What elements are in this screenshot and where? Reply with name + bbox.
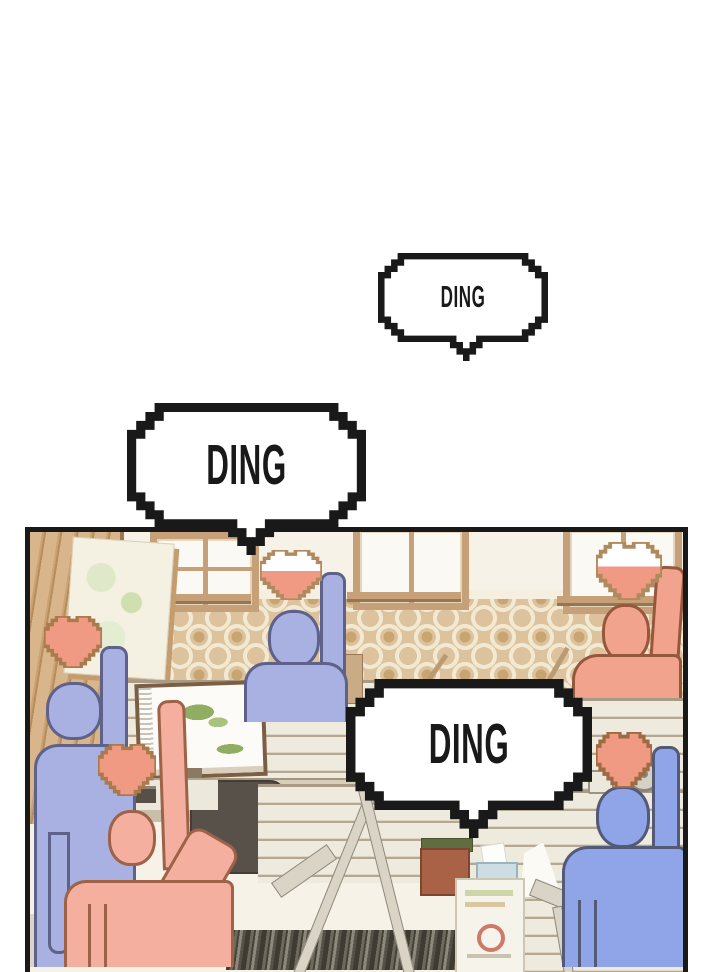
poster-line-2 bbox=[465, 902, 505, 907]
head bbox=[268, 610, 320, 668]
poster-line-3 bbox=[467, 954, 511, 958]
pixel-heart-icon-filled bbox=[596, 732, 652, 788]
speech-bubble-3: DING bbox=[346, 679, 592, 838]
bubble-text: DING bbox=[401, 679, 536, 809]
arm-contour bbox=[104, 904, 107, 967]
pixel-heart-icon-half bbox=[596, 542, 662, 600]
pixel-heart-icon-filled bbox=[44, 616, 102, 668]
poster-red-ring bbox=[477, 924, 505, 952]
bubble-text: DING bbox=[181, 403, 312, 528]
window-sill-middle bbox=[347, 592, 461, 602]
arm-contour bbox=[594, 900, 597, 967]
body bbox=[244, 662, 348, 722]
speech-bubble-2: DING bbox=[127, 403, 366, 555]
wall-poster bbox=[455, 878, 525, 972]
head bbox=[46, 682, 102, 740]
pixel-heart-icon-half bbox=[260, 550, 322, 600]
bubble-text: DING bbox=[416, 253, 510, 342]
head bbox=[108, 810, 156, 866]
comic-page: DING DING DING bbox=[0, 0, 720, 972]
head bbox=[596, 786, 650, 848]
arm-contour bbox=[88, 904, 91, 967]
speech-bubble-1: DING bbox=[378, 253, 548, 361]
pixel-heart-icon-filled bbox=[98, 744, 156, 796]
poster-line-1 bbox=[465, 890, 513, 896]
book-row bbox=[226, 930, 476, 970]
arm-contour bbox=[578, 900, 581, 967]
